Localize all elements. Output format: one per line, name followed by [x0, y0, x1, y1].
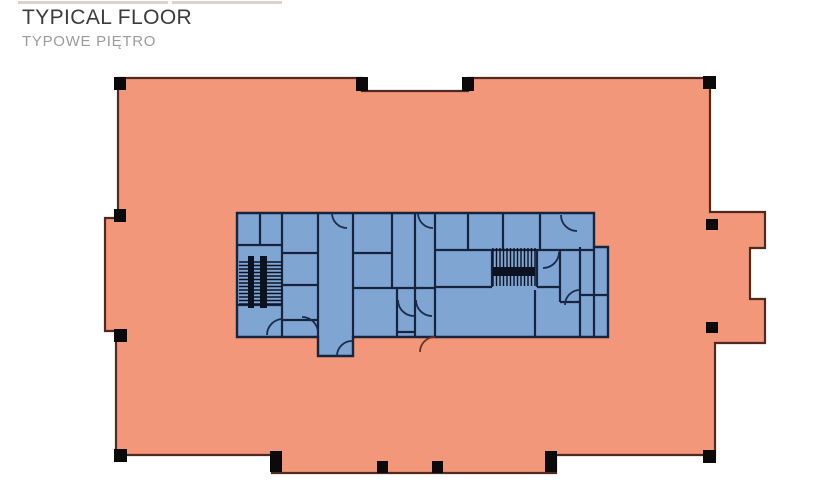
- column-marker: [356, 77, 368, 91]
- stair-rail: [493, 267, 535, 276]
- column-marker: [706, 219, 718, 230]
- floorplan-svg: [0, 0, 837, 489]
- column-marker: [462, 77, 474, 91]
- top-artifact-bar: [18, 1, 168, 4]
- column-marker: [703, 76, 716, 89]
- stair-rail: [260, 256, 267, 308]
- title-block: TYPICAL FLOOR TYPOWE PIĘTRO: [22, 6, 192, 50]
- column-marker: [270, 451, 282, 472]
- column-marker: [432, 461, 443, 473]
- column-marker: [114, 449, 127, 462]
- page-title: TYPICAL FLOOR: [22, 6, 192, 30]
- column-marker: [114, 329, 127, 342]
- page: TYPICAL FLOOR TYPOWE PIĘTRO: [0, 0, 837, 489]
- column-marker: [377, 461, 388, 473]
- page-subtitle: TYPOWE PIĘTRO: [22, 33, 192, 50]
- top-artifact-bar: [172, 1, 282, 4]
- column-marker: [703, 450, 716, 463]
- column-marker: [114, 209, 126, 222]
- stair-rail: [248, 256, 254, 308]
- column-marker: [706, 322, 718, 333]
- column-marker: [545, 451, 557, 472]
- column-marker: [114, 77, 126, 90]
